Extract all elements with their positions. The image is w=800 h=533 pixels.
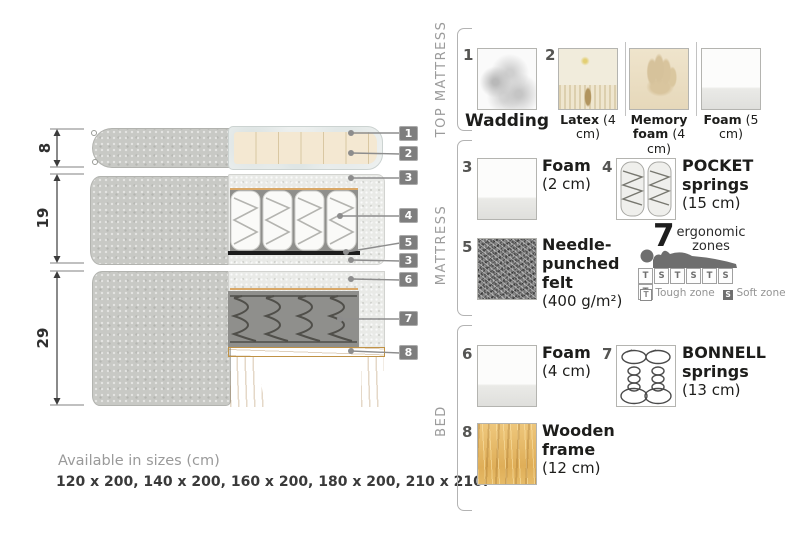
zone-cell-4: S: [686, 268, 701, 284]
felt-name: Needle-punched felt: [542, 236, 634, 293]
callout-5: 5: [399, 235, 418, 250]
legend-num-bonnell: 7: [602, 345, 612, 363]
available-sizes-title: Available in sizes (cm): [58, 453, 220, 469]
wooden-leg-right: [361, 357, 384, 407]
callout-3: 3: [399, 170, 418, 185]
foam-5cm-name: Foam: [704, 112, 742, 127]
group-label-top-mattress: TOP MATTRESS: [434, 0, 450, 159]
legend-num-pocket: 4: [602, 158, 612, 176]
latex-texture-image: [558, 48, 618, 110]
callout-1: 1: [399, 126, 418, 141]
mattress-button-top: [91, 130, 97, 136]
felt-caption: Needle-punched felt (400 g/m²): [542, 236, 634, 310]
memory-foam-caption: Memory foam (4 cm): [623, 113, 695, 156]
wooden-frame-size: (12 cm): [542, 460, 672, 478]
zone-legend: T Tough zone S Soft zone: [640, 287, 786, 301]
foam-4cm-size: (4 cm): [542, 363, 612, 381]
dimension-mattress: 19: [34, 198, 50, 238]
mattress-button-bottom: [92, 159, 98, 165]
legend-num-wadding: 1: [463, 46, 473, 64]
ergonomic-caption-line1: ergonomic: [676, 226, 746, 240]
bonnell-springs-cross-section: [228, 291, 359, 347]
callout-3b: 3: [399, 253, 418, 268]
group-label-mattress: MATTRESS: [434, 165, 450, 325]
wooden-frame-name: Wooden frame: [542, 422, 672, 460]
pocket-springs-size: (15 cm): [682, 195, 762, 213]
wooden-leg-left: [230, 357, 266, 407]
dimension-bed: 29: [34, 318, 50, 358]
legend-num-foam-4cm: 6: [462, 345, 472, 363]
foam-4cm-texture-image: [477, 345, 537, 407]
tough-zone-label: Tough zone: [655, 287, 714, 299]
legend-num-latex: 2: [545, 46, 555, 64]
foam-5cm-caption: Foam (5 cm): [691, 113, 771, 142]
wadding-caption: Wadding: [462, 112, 552, 132]
top-mattress-fabric: [92, 128, 232, 168]
mattress-infographic: 8 19 29 1 2 3 4 5 3 6 7 8 Available in s…: [0, 0, 800, 533]
group-label-bed: BED: [434, 341, 450, 501]
legend-divider-2: [696, 42, 697, 116]
pocket-springs-drawing: [616, 158, 676, 220]
available-sizes-values: 120 x 200, 140 x 200, 160 x 200, 180 x 2…: [56, 474, 488, 490]
felt-texture-image: [477, 238, 537, 300]
felt-layer-cross-section: [228, 251, 360, 255]
callout-6: 6: [399, 272, 418, 287]
memory-foam-texture-image: [629, 48, 689, 110]
legend-num-felt: 5: [462, 238, 472, 256]
zone-cell-2: S: [654, 268, 669, 284]
sleeping-person-icon: [636, 246, 738, 270]
latex-name: Latex: [560, 112, 599, 127]
zone-cell-1: T: [638, 268, 653, 284]
callout-2: 2: [399, 146, 418, 161]
zone-cell-5: T: [702, 268, 717, 284]
legend-divider-1: [625, 42, 626, 116]
zone-cell-3: T: [670, 268, 685, 284]
bonnell-springs-caption: BONNELL springs (13 cm): [682, 344, 766, 399]
bed-base-fabric: [92, 271, 231, 406]
pocket-springs-cross-section: [230, 190, 358, 251]
wood-texture-image: [477, 423, 537, 485]
bonnell-springs-size: (13 cm): [682, 382, 766, 400]
callout-7: 7: [399, 311, 418, 326]
foam-2cm-size: (2 cm): [542, 176, 612, 194]
wooden-frame-caption: Wooden frame (12 cm): [542, 422, 672, 477]
mattress-fabric: [90, 176, 231, 265]
foam-5cm-texture-image: [701, 48, 761, 110]
callout-8: 8: [399, 345, 418, 360]
bonnell-springs-drawing: [616, 345, 676, 407]
wadding-texture-image: [477, 48, 537, 110]
pocket-springs-name: POCKET springs: [682, 157, 762, 195]
legend-num-wooden-frame: 8: [462, 423, 472, 441]
soft-zone-label: Soft zone: [736, 287, 785, 299]
felt-size: (400 g/m²): [542, 293, 634, 311]
zone-cell-6: S: [718, 268, 733, 284]
legend-num-foam-2cm: 3: [462, 158, 472, 176]
soft-zone-symbol: S: [723, 290, 733, 300]
dimension-top-mattress: 8: [36, 128, 52, 168]
wooden-slat: [228, 347, 385, 357]
foam-2cm-texture-image: [477, 158, 537, 220]
bed-top-tape: [230, 288, 358, 290]
latex-caption: Latex (4 cm): [548, 113, 628, 142]
latex-layer-cross-section: [234, 132, 377, 164]
callout-4: 4: [399, 208, 418, 223]
bonnell-springs-name: BONNELL springs: [682, 344, 766, 382]
pocket-springs-caption: POCKET springs (15 cm): [682, 157, 762, 212]
tough-zone-symbol: T: [640, 289, 652, 301]
